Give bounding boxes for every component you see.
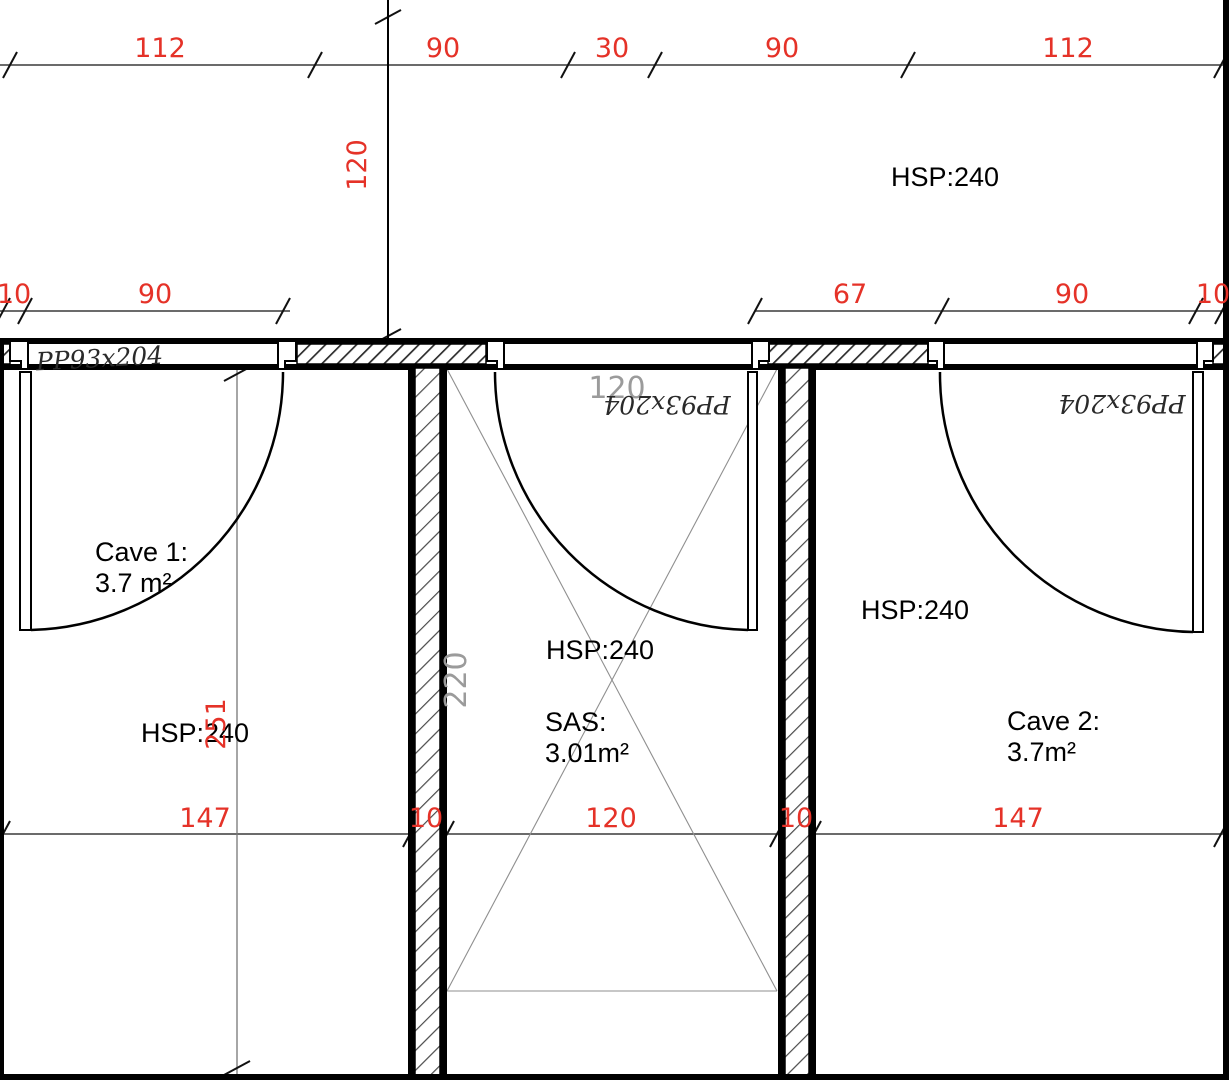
room-label-cave1-area: 3.7 m² [95,568,172,598]
dim-label-cave1-vertical: 251 [201,698,232,750]
wall-top-inner-face [0,364,1229,370]
wall-sas-left [408,368,447,1075]
dim-label-midright-0: 67 [833,279,867,310]
wall-top-outer-face [0,338,1229,344]
floor-plan-page: 120 220 PP93x204 PP93x204 PP93x204 HSP:2… [0,0,1229,1080]
wall-bottom-edge [0,1074,1229,1080]
dim-label-top-vertical: 120 [342,139,373,191]
dim-label-sas-vertical: 220 [439,651,474,708]
dim-label-midleft-1: 90 [138,279,172,310]
wall-hatch-mid-left [297,344,486,364]
door-label-cave2: PP93x204 [1058,389,1186,418]
dim-label-bottom-3: 10 [779,803,813,834]
room-label-upper-hsp: HSP:240 [891,162,999,192]
room-label-cave2-name: Cave 2: [1007,706,1100,736]
room-label-sas-area: 3.01m² [545,738,629,768]
room-label-sas-hsp: HSP:240 [546,635,654,665]
wall-sas-right [778,368,816,1075]
room-label-cave1-hsp: HSP:240 [141,718,249,748]
door-label-sas: PP93x204 [603,390,731,419]
dim-label-midright-2: 10 [1196,279,1229,310]
dim-label-midleft-0: 10 [0,279,31,310]
door-leaf-cave1 [20,372,31,630]
room-label-cave2-area: 3.7m² [1007,737,1076,767]
room-label-sas-name: SAS: [545,707,607,737]
dim-label-top-1: 90 [426,33,460,64]
dim-label-top-4: 112 [1042,33,1094,64]
dim-label-bottom-1: 10 [409,803,443,834]
wall-right-edge [1223,0,1229,1080]
wall-left-edge [0,338,4,1080]
room-label-cave2-hsp: HSP:240 [861,595,969,625]
dim-label-bottom-2: 120 [585,803,637,834]
door-leaf-cave2 [1193,372,1203,632]
wall-hatch-mid-right [768,344,928,364]
dim-label-top-0: 112 [134,33,186,64]
floor-plan-svg: 120 220 PP93x204 PP93x204 PP93x204 HSP:2… [0,0,1229,1080]
dim-label-top-2: 30 [595,33,629,64]
room-label-cave1-name: Cave 1: [95,537,188,567]
dim-label-top-3: 90 [765,33,799,64]
dim-label-bottom-0: 147 [179,803,231,834]
dim-label-midright-1: 90 [1055,279,1089,310]
door-leaf-sas [748,372,757,630]
dim-label-bottom-4: 147 [992,803,1044,834]
